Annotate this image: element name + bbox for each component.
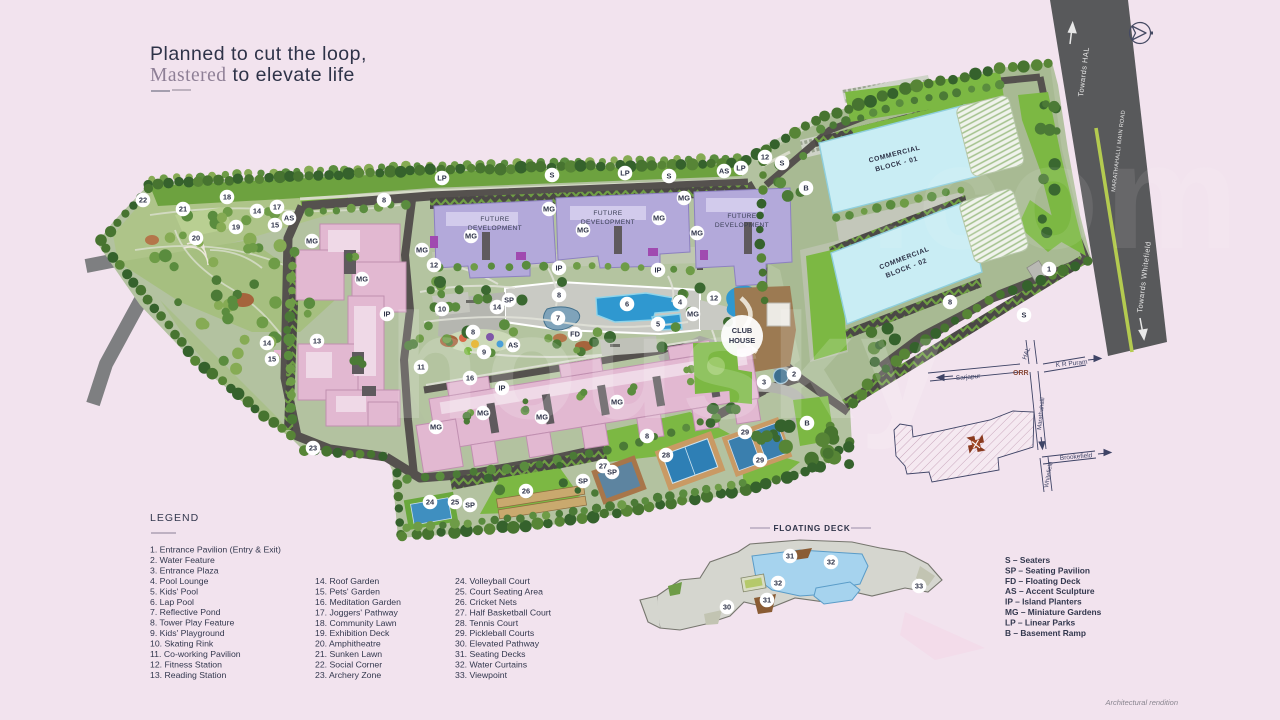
svg-text:16: 16 xyxy=(466,374,474,383)
svg-text:.com: .com xyxy=(870,112,1244,280)
svg-text:S – Seaters: S – Seaters xyxy=(1005,555,1051,565)
svg-text:MG: MG xyxy=(356,275,368,284)
svg-text:3: 3 xyxy=(762,378,766,387)
svg-text:11. Co-working Pavilion: 11. Co-working Pavilion xyxy=(150,649,241,659)
svg-text:7. Reflective Pond: 7. Reflective Pond xyxy=(150,607,221,617)
svg-text:25. Court Seating Area: 25. Court Seating Area xyxy=(455,587,543,597)
svg-text:22. Social Corner: 22. Social Corner xyxy=(315,660,382,670)
svg-text:14: 14 xyxy=(493,303,502,312)
svg-text:AS: AS xyxy=(508,341,518,350)
svg-text:32: 32 xyxy=(774,579,782,588)
svg-text:S: S xyxy=(667,172,672,181)
svg-text:Architectural rendition: Architectural rendition xyxy=(1104,698,1178,707)
svg-text:SP: SP xyxy=(578,477,588,486)
svg-text:24: 24 xyxy=(426,498,435,507)
svg-text:17. Joggers' Pathway: 17. Joggers' Pathway xyxy=(315,607,398,617)
svg-text:SP: SP xyxy=(504,296,514,305)
svg-text:12. Fitness Station: 12. Fitness Station xyxy=(150,660,222,670)
svg-text:IP: IP xyxy=(655,266,662,275)
svg-text:15: 15 xyxy=(271,221,279,230)
svg-text:8: 8 xyxy=(382,196,386,205)
svg-text:AS – Accent Sculpture: AS – Accent Sculpture xyxy=(1005,586,1095,596)
svg-text:18. Community Lawn: 18. Community Lawn xyxy=(315,618,397,628)
svg-text:1: 1 xyxy=(1047,265,1051,274)
svg-text:20: 20 xyxy=(192,234,200,243)
svg-text:5: 5 xyxy=(656,320,660,329)
svg-text:AS: AS xyxy=(719,167,729,176)
svg-text:B: B xyxy=(803,184,808,193)
svg-text:MG: MG xyxy=(465,232,477,241)
svg-text:MG: MG xyxy=(691,229,703,238)
svg-text:MG: MG xyxy=(430,423,442,432)
svg-text:26: 26 xyxy=(522,487,530,496)
svg-text:MG: MG xyxy=(477,409,489,418)
svg-text:MG: MG xyxy=(611,398,623,407)
svg-text:15. Pets' Garden: 15. Pets' Garden xyxy=(315,587,380,597)
svg-text:CLUB: CLUB xyxy=(732,326,753,335)
svg-text:12: 12 xyxy=(430,261,438,270)
svg-text:30. Elevated Pathway: 30. Elevated Pathway xyxy=(455,639,540,649)
svg-text:24. Volleyball Court: 24. Volleyball Court xyxy=(455,576,530,586)
svg-text:30: 30 xyxy=(723,603,731,612)
svg-text:S: S xyxy=(550,171,555,180)
svg-text:26. Cricket Nets: 26. Cricket Nets xyxy=(455,597,517,607)
svg-text:SP: SP xyxy=(607,468,617,477)
svg-text:21. Sunken Lawn: 21. Sunken Lawn xyxy=(315,649,382,659)
svg-text:29: 29 xyxy=(741,428,749,437)
svg-text:17: 17 xyxy=(273,203,281,212)
svg-text:MG: MG xyxy=(687,310,699,319)
svg-text:10. Skating Rink: 10. Skating Rink xyxy=(150,639,214,649)
svg-text:MG: MG xyxy=(653,214,665,223)
svg-text:B: B xyxy=(804,419,809,428)
svg-text:MG: MG xyxy=(536,413,548,422)
svg-text:Planned to cut the loop,: Planned to cut the loop, xyxy=(150,43,367,65)
svg-text:IP – Island Planters: IP – Island Planters xyxy=(1005,597,1082,607)
svg-text:FD – Floating Deck: FD – Floating Deck xyxy=(1005,576,1081,586)
svg-text:25: 25 xyxy=(451,498,459,507)
svg-text:AS: AS xyxy=(284,214,294,223)
svg-text:S: S xyxy=(1022,311,1027,320)
svg-text:29: 29 xyxy=(756,456,764,465)
svg-text:19. Exhibition Deck: 19. Exhibition Deck xyxy=(315,628,390,638)
svg-text:14. Roof Garden: 14. Roof Garden xyxy=(315,576,379,586)
svg-text:IP: IP xyxy=(499,384,506,393)
svg-text:23. Archery Zone: 23. Archery Zone xyxy=(315,670,381,680)
svg-text:IP: IP xyxy=(556,264,563,273)
svg-text:18: 18 xyxy=(223,193,231,202)
svg-text:S: S xyxy=(780,159,785,168)
svg-text:33: 33 xyxy=(915,582,923,591)
svg-text:23: 23 xyxy=(309,444,317,453)
svg-text:DEVELOPMENT: DEVELOPMENT xyxy=(715,222,769,229)
svg-text:28: 28 xyxy=(662,451,670,460)
svg-text:19: 19 xyxy=(232,223,240,232)
svg-text:LP – Linear Parks: LP – Linear Parks xyxy=(1005,617,1075,627)
svg-text:27. Half Basketball Court: 27. Half Basketball Court xyxy=(455,607,552,617)
svg-text:15: 15 xyxy=(268,355,276,364)
svg-text:LP: LP xyxy=(620,169,630,178)
svg-text:8: 8 xyxy=(471,328,475,337)
svg-text:8: 8 xyxy=(557,291,561,300)
svg-text:16. Meditation Garden: 16. Meditation Garden xyxy=(315,597,401,607)
svg-text:10: 10 xyxy=(438,305,446,314)
svg-text:2: 2 xyxy=(792,370,796,379)
svg-text:FUTURE: FUTURE xyxy=(593,210,622,217)
svg-text:9. Kids' Playground: 9. Kids' Playground xyxy=(150,628,225,638)
svg-text:5. Kids' Pool: 5. Kids' Pool xyxy=(150,586,198,596)
svg-text:FUTURE: FUTURE xyxy=(480,216,509,223)
svg-text:housky: housky xyxy=(388,282,949,450)
svg-text:Mastered to elevate life: Mastered to elevate life xyxy=(150,64,355,86)
svg-text:8. Tower Play Feature: 8. Tower Play Feature xyxy=(150,618,235,628)
svg-text:MG – Miniature Gardens: MG – Miniature Gardens xyxy=(1005,607,1102,617)
svg-text:DEVELOPMENT: DEVELOPMENT xyxy=(468,225,522,232)
svg-text:DEVELOPMENT: DEVELOPMENT xyxy=(581,219,635,226)
svg-text:20. Amphitheatre: 20. Amphitheatre xyxy=(315,639,381,649)
svg-text:FD: FD xyxy=(570,330,581,339)
svg-text:1. Entrance Pavilion (Entry &: 1. Entrance Pavilion (Entry & Exit) xyxy=(150,545,281,555)
svg-text:HOUSE: HOUSE xyxy=(729,336,755,345)
svg-text:LP: LP xyxy=(437,174,447,183)
svg-text:31. Seating Decks: 31. Seating Decks xyxy=(455,649,526,659)
svg-text:2. Water Feature: 2. Water Feature xyxy=(150,555,215,565)
svg-text:14: 14 xyxy=(263,339,272,348)
svg-text:MG: MG xyxy=(306,237,318,246)
svg-text:28. Tennis Court: 28. Tennis Court xyxy=(455,618,519,628)
svg-text:32: 32 xyxy=(827,558,835,567)
svg-text:6. Lap Pool: 6. Lap Pool xyxy=(150,597,194,607)
svg-text:12: 12 xyxy=(710,294,718,303)
svg-text:FUTURE: FUTURE xyxy=(727,213,756,220)
svg-text:14: 14 xyxy=(253,207,262,216)
svg-text:3. Entrance Plaza: 3. Entrance Plaza xyxy=(150,565,219,575)
svg-text:MG: MG xyxy=(678,194,690,203)
svg-text:31: 31 xyxy=(786,552,794,561)
svg-text:LP: LP xyxy=(736,164,746,173)
svg-text:FLOATING DECK: FLOATING DECK xyxy=(773,524,850,533)
svg-text:12: 12 xyxy=(761,153,769,162)
svg-text:7: 7 xyxy=(556,314,560,323)
svg-text:9: 9 xyxy=(482,348,486,357)
svg-text:13: 13 xyxy=(313,337,321,346)
svg-text:SP – Seating Pavilion: SP – Seating Pavilion xyxy=(1005,565,1090,575)
svg-text:ORR: ORR xyxy=(1013,370,1029,377)
svg-text:31: 31 xyxy=(763,596,771,605)
svg-text:21: 21 xyxy=(179,205,187,214)
svg-text:13. Reading Station: 13. Reading Station xyxy=(150,670,226,680)
svg-text:32. Water Curtains: 32. Water Curtains xyxy=(455,660,528,670)
svg-text:MG: MG xyxy=(416,246,428,255)
svg-text:B – Basement Ramp: B – Basement Ramp xyxy=(1005,628,1086,638)
svg-text:8: 8 xyxy=(948,298,952,307)
svg-text:8: 8 xyxy=(645,432,649,441)
svg-text:IP: IP xyxy=(384,310,391,319)
svg-text:11: 11 xyxy=(417,363,425,372)
svg-text:MG: MG xyxy=(577,226,589,235)
svg-text:LEGEND: LEGEND xyxy=(150,512,199,524)
svg-text:MG: MG xyxy=(543,205,555,214)
svg-text:6: 6 xyxy=(625,300,629,309)
svg-text:29. Pickleball Courts: 29. Pickleball Courts xyxy=(455,628,535,638)
svg-text:33. Viewpoint: 33. Viewpoint xyxy=(455,670,508,680)
svg-text:22: 22 xyxy=(139,196,147,205)
svg-text:4. Pool Lounge: 4. Pool Lounge xyxy=(150,576,209,586)
svg-text:SP: SP xyxy=(465,501,475,510)
